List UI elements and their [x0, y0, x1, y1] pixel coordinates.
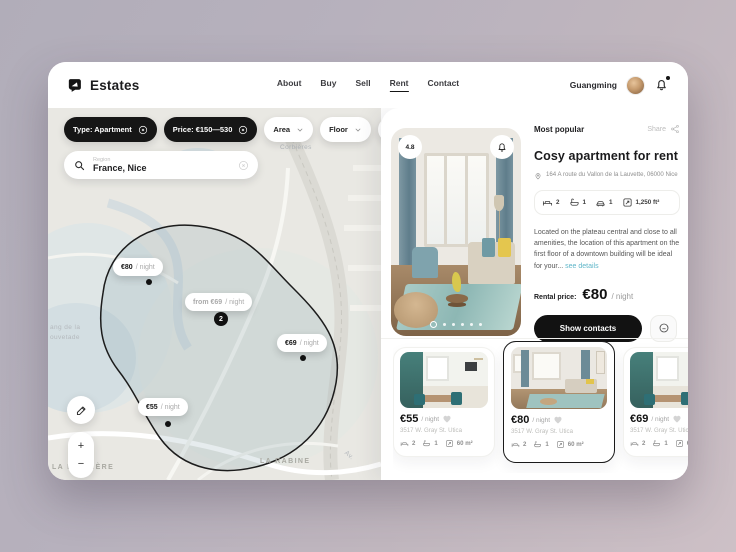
header-user-area: Guangming — [570, 76, 670, 95]
nav-buy[interactable]: Buy — [320, 78, 336, 92]
rental-price-suffix: / night — [611, 292, 633, 301]
favorite-heart-icon[interactable] — [672, 414, 682, 424]
brand-logo[interactable]: Estates — [66, 77, 139, 94]
listings-panel: 4.8 Most — [381, 108, 688, 480]
amenities-bar: 2 1 1 — [534, 190, 680, 215]
similar-listings-row: €55 / night 3517 W. Gray St. Utica 2 1 6… — [393, 341, 688, 473]
rental-price-row: Rental price: €80 / night — [534, 286, 680, 303]
card-address: 3517 W. Gray St. Utica — [630, 427, 688, 434]
chevron-down-icon — [354, 126, 362, 134]
rating-badge: 4.8 — [398, 135, 422, 159]
section-title: Most popular — [534, 125, 584, 134]
filter-price-label: Price: €150—530 — [173, 125, 233, 134]
nav-rent[interactable]: Rent — [390, 78, 409, 92]
panel-divider — [381, 338, 688, 339]
chevron-down-icon — [296, 126, 304, 134]
rental-price-value: €80 — [582, 286, 607, 303]
map-label-etang-2: ouvetade — [50, 334, 80, 341]
listing-card-photo — [400, 352, 488, 408]
card-amenities: 2 1 60 m² — [400, 439, 488, 448]
bath-icon — [652, 439, 661, 448]
desktop-background: Estates About Buy Sell Rent Contact Guan… — [0, 0, 736, 552]
carousel-dot[interactable] — [443, 323, 446, 326]
listing-details: Most popular Share Cosy apartment for re… — [534, 124, 680, 342]
card-price: €80 — [511, 414, 529, 426]
area-icon — [622, 197, 633, 208]
carousel-dot[interactable] — [479, 323, 482, 326]
map-label-corbieres: Corbières — [280, 144, 312, 151]
remove-type-filter-icon[interactable] — [138, 125, 148, 135]
region-search[interactable]: Region — [64, 151, 258, 179]
listing-card-55[interactable]: €55 / night 3517 W. Gray St. Utica 2 1 6… — [393, 347, 495, 457]
area-icon — [556, 440, 565, 449]
bell-icon — [496, 141, 508, 153]
favorite-heart-icon[interactable] — [442, 414, 452, 424]
pin-price: €80 — [121, 264, 133, 271]
listing-card-69[interactable]: €69 / night 3517 W. Gray St. Utica 2 1 6… — [623, 347, 688, 457]
pin-prefix-price: from €69 — [193, 299, 222, 306]
pencil-icon — [75, 404, 88, 417]
draw-area-button[interactable] — [67, 396, 95, 424]
brand-name: Estates — [90, 78, 139, 93]
bed-icon — [511, 440, 520, 449]
filter-floor-label: Floor — [329, 125, 348, 134]
card-amenities: 2 1 60 m² — [511, 440, 607, 449]
carousel-dot[interactable] — [470, 323, 473, 326]
map-pin-80[interactable]: €80 / night — [113, 258, 163, 276]
map-pin-69[interactable]: €69 / night — [277, 334, 327, 352]
card-price-suffix: / night — [651, 416, 669, 423]
map-zoom-control: + − — [68, 432, 94, 478]
filter-type-chip[interactable]: Type: Apartment — [64, 117, 157, 142]
bed-icon — [542, 197, 553, 208]
favorite-heart-icon[interactable] — [553, 415, 563, 425]
map-cluster-badge[interactable]: 2 — [214, 312, 228, 326]
nav-sell[interactable]: Sell — [355, 78, 370, 92]
card-address: 3517 W. Gray St. Utica — [511, 428, 607, 435]
bath-icon — [422, 439, 431, 448]
filter-floor-dropdown[interactable]: Floor — [320, 117, 371, 142]
amenity-beds: 2 — [542, 197, 560, 208]
share-icon — [670, 124, 680, 134]
car-icon — [595, 197, 606, 208]
share-label: Share — [647, 126, 666, 133]
area-icon — [675, 439, 684, 448]
rental-price-label: Rental price: — [534, 294, 576, 301]
app-window: Estates About Buy Sell Rent Contact Guan… — [48, 62, 688, 480]
bed-icon — [630, 439, 639, 448]
map-pin-69-dot — [300, 355, 306, 361]
filter-price-chip[interactable]: Price: €150—530 — [164, 117, 258, 142]
card-amenities: 2 1 60 m² — [630, 439, 688, 448]
estates-logo-icon — [66, 77, 83, 94]
pin-price: €69 — [285, 340, 297, 347]
map-pin-80-dot — [146, 279, 152, 285]
card-price: €69 — [630, 413, 648, 425]
filter-type-label: Type: Apartment — [73, 125, 132, 134]
listing-title: Cosy apartment for rent — [534, 149, 680, 163]
pin-suffix: / night — [225, 299, 244, 306]
amenity-parking: 1 — [595, 197, 613, 208]
map-pin-55[interactable]: €55 / night — [138, 398, 188, 416]
filter-area-dropdown[interactable]: Area — [264, 117, 313, 142]
carousel-dot[interactable] — [452, 323, 455, 326]
listing-card-photo — [630, 352, 688, 408]
featured-listing-photo[interactable]: 4.8 — [391, 128, 521, 336]
listing-alert-button[interactable] — [490, 135, 514, 159]
map-label-la-rabine: LA RABINE — [260, 458, 310, 465]
pin-suffix: / night — [300, 340, 319, 347]
pin-price: €55 — [146, 404, 158, 411]
listing-description: Located on the plateau central and close… — [534, 227, 680, 272]
see-details-link[interactable]: see details — [565, 263, 598, 270]
amenity-area: 1,250 ft² — [622, 197, 660, 208]
notification-dot — [666, 76, 670, 80]
zoom-in-button[interactable]: + — [68, 441, 94, 451]
region-search-input[interactable] — [93, 163, 231, 173]
clear-search-icon[interactable] — [238, 160, 249, 171]
pin-suffix: / night — [136, 264, 155, 271]
pin-suffix: / night — [161, 404, 180, 411]
nav-about[interactable]: About — [277, 78, 302, 92]
bath-icon — [569, 197, 580, 208]
amenity-baths: 1 — [569, 197, 587, 208]
photo-carousel-dots — [430, 321, 482, 328]
map-pin-55-dot — [165, 421, 171, 427]
listing-address-row: 164 A route du Vallon de la Lauvette, 06… — [534, 171, 680, 180]
card-price-suffix: / night — [532, 417, 550, 424]
map-label-etang-1: ang de la — [50, 324, 80, 331]
notifications-button[interactable] — [654, 77, 670, 93]
avatar[interactable] — [626, 76, 645, 95]
top-navbar: Estates About Buy Sell Rent Contact Guan… — [48, 62, 688, 108]
area-icon — [445, 439, 454, 448]
filter-bar: Type: Apartment Price: €150—530 Area — [64, 117, 381, 142]
location-pin-icon — [534, 172, 542, 180]
main-nav: About Buy Sell Rent Contact — [277, 78, 459, 92]
carousel-dot[interactable] — [461, 323, 464, 326]
listing-card-80-selected[interactable]: €80 / night 3517 W. Gray St. Utica 2 1 6… — [503, 341, 615, 463]
filter-area-label: Area — [273, 125, 290, 134]
nav-contact[interactable]: Contact — [427, 78, 459, 92]
carousel-dot-active[interactable] — [430, 321, 437, 328]
bath-icon — [533, 440, 542, 449]
remove-price-filter-icon[interactable] — [238, 125, 248, 135]
smiley-icon — [658, 322, 670, 334]
listing-card-photo — [511, 347, 607, 409]
share-button[interactable]: Share — [647, 124, 680, 134]
zoom-out-button[interactable]: − — [68, 459, 94, 469]
map-canvas[interactable]: Corbières LA LOUVIÈRE LA RABINE ang de l… — [48, 108, 381, 480]
bed-icon — [400, 439, 409, 448]
card-price: €55 — [400, 413, 418, 425]
card-address: 3517 W. Gray St. Utica — [400, 427, 488, 434]
listing-address: 164 A route du Vallon de la Lauvette, 06… — [546, 171, 678, 180]
map-pin-from-69[interactable]: from €69 / night — [185, 293, 252, 311]
card-price-suffix: / night — [421, 416, 439, 423]
username: Guangming — [570, 80, 617, 90]
search-icon — [73, 159, 86, 172]
